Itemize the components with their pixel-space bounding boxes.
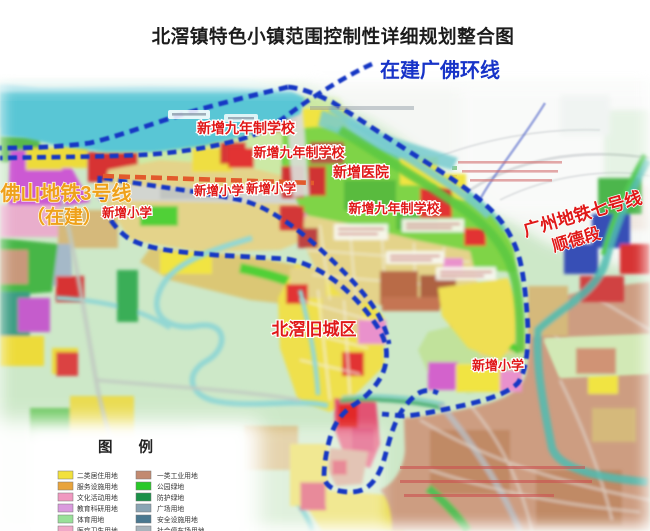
svg-text:在建广佛环线: 在建广佛环线: [380, 58, 500, 82]
svg-text:新增小学: 新增小学: [102, 205, 153, 220]
svg-text:新增九年制学校: 新增九年制学校: [348, 201, 440, 216]
svg-text:北滘镇特色小镇范围控制性详细规划整合图: 北滘镇特色小镇范围控制性详细规划整合图: [152, 26, 515, 47]
svg-text:教育科研用地: 教育科研用地: [77, 504, 118, 513]
svg-text:（在建）: （在建）: [26, 205, 102, 228]
svg-text:一类工业用地: 一类工业用地: [157, 471, 198, 480]
svg-text:广场用地: 广场用地: [157, 504, 184, 513]
svg-text:公园绿地: 公园绿地: [157, 482, 184, 491]
svg-text:北滘旧城区: 北滘旧城区: [272, 320, 357, 339]
svg-text:新增医院: 新增医院: [333, 164, 389, 180]
svg-text:新增小学: 新增小学: [246, 181, 297, 196]
svg-text:安全设施用地: 安全设施用地: [157, 515, 198, 524]
svg-text:文化活动用地: 文化活动用地: [77, 493, 118, 502]
svg-text:新增小学: 新增小学: [194, 183, 245, 198]
svg-text:体育用地: 体育用地: [77, 515, 104, 524]
svg-text:图例: 图例: [98, 438, 179, 456]
svg-text:新增小学: 新增小学: [472, 358, 524, 373]
svg-text:新增九年制学校: 新增九年制学校: [197, 120, 296, 136]
svg-text:服务设施用地: 服务设施用地: [77, 482, 118, 491]
svg-text:新增九年制学校: 新增九年制学校: [253, 145, 345, 160]
svg-text:二类居住用地: 二类居住用地: [77, 471, 118, 480]
svg-text:防护绿地: 防护绿地: [157, 493, 184, 502]
svg-text:佛山地铁3号线: 佛山地铁3号线: [0, 181, 132, 205]
